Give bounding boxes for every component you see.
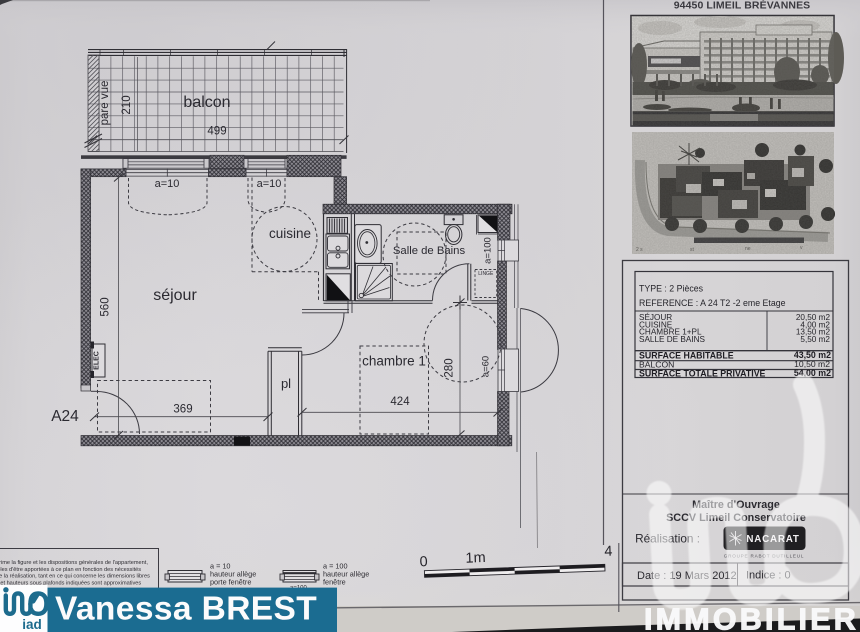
svg-text:TYPE : 2 Pièces: TYPE : 2 Pièces [639,284,704,294]
svg-text:porte fenêtre: porte fenêtre [210,578,251,587]
svg-text:cuisine: cuisine [269,226,311,241]
svg-text:4: 4 [604,544,613,560]
svg-text:1m: 1m [465,550,486,567]
svg-text:REFERENCE : A 24 T2 -2 eme Et: REFERENCE : A 24 T2 -2 eme Etage [639,298,786,308]
svg-text:ibles d'être apportées à ce pl: ibles d'être apportées à ce plan en fonc… [0,567,141,573]
svg-text:séjour: séjour [153,287,197,304]
svg-text:a=10: a=10 [257,178,282,190]
svg-text:5,50 m2: 5,50 m2 [800,335,830,344]
svg-text:SURFACE TOTALE PRIVATIVE: SURFACE TOTALE PRIVATIVE [639,369,766,379]
svg-text:prime la figure et les disposi: prime la figure et les dispositions géné… [0,560,148,566]
svg-text:Salle de Bains: Salle de Bains [393,245,466,257]
svg-text:iad: iad [22,617,42,632]
svg-text:280: 280 [444,358,456,377]
svg-text:210: 210 [121,95,133,114]
svg-text:Date : 19 Mars 2012: Date : 19 Mars 2012 [637,570,737,582]
svg-text:chambre 1: chambre 1 [362,354,426,369]
svg-text:de la réalisation, tant en ce: de la réalisation, tant en ce qui concer… [0,574,150,580]
svg-text:IMMOBILIER: IMMOBILIER [644,603,859,632]
svg-text:94450 LIMEIL BRÉVANNES: 94450 LIMEIL BRÉVANNES [674,0,811,12]
svg-text:a=100: a=100 [483,237,494,264]
svg-text:SALLE DE BAINS: SALLE DE BAINS [639,335,706,344]
svg-text:a=10: a=10 [155,178,180,190]
svg-text:fenêtre: fenêtre [323,578,346,587]
svg-text:424: 424 [390,396,410,408]
svg-text:balcon: balcon [183,94,230,111]
svg-text:a=60: a=60 [481,356,492,377]
svg-text:A24: A24 [51,408,79,425]
svg-text:560: 560 [100,297,112,316]
svg-text:LINGE: LINGE [478,271,494,277]
svg-text:ELEC: ELEC [94,351,101,370]
svg-text:0: 0 [419,554,428,570]
svg-text:pare vue: pare vue [99,81,111,126]
svg-text:369: 369 [173,404,192,416]
svg-text:Vanessa BREST: Vanessa BREST [55,591,317,628]
svg-text:pl: pl [281,376,291,391]
svg-text:499: 499 [207,126,226,138]
